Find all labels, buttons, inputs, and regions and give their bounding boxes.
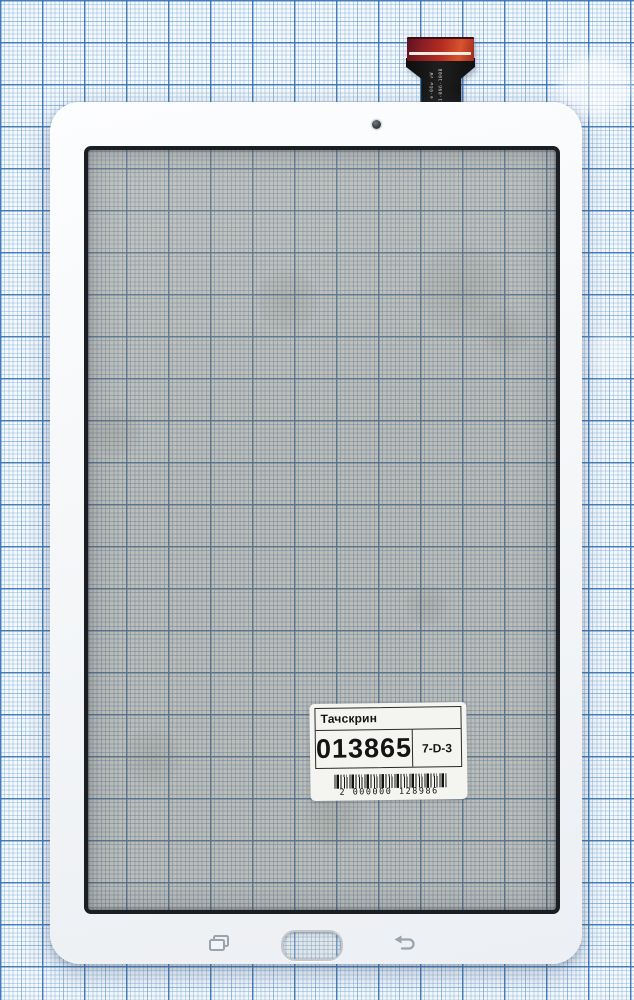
screen-glass: Тачскрин 013865 7-D-3 2 000000 128986 <box>84 146 560 914</box>
flex-ribbon: ⊕-06w vW 60Z1-096-100B <box>406 58 475 107</box>
front-camera-icon <box>372 120 381 129</box>
label-sticker: Тачскрин 013865 7-D-3 2 000000 128986 <box>309 702 467 801</box>
photo-graph-paper-background: ⊕-06w vW 60Z1-096-100B Тачскрин 0 <box>0 0 634 1000</box>
label-title: Тачскрин <box>315 707 460 731</box>
label-part-number: 013865 <box>316 730 413 768</box>
tablet-digitizer: Тачскрин 013865 7-D-3 2 000000 128986 <box>50 102 582 964</box>
recent-apps-icon <box>206 933 232 953</box>
back-arrow-icon <box>391 934 417 954</box>
glass-smudge <box>405 583 449 627</box>
flex-marking: ⊕-06w vW <box>430 72 435 98</box>
glass-smudge <box>90 406 142 458</box>
flex-connector <box>407 37 474 61</box>
glass-smudge <box>122 727 182 787</box>
flex-connector-stripe <box>409 52 471 55</box>
label-number-row: 013865 7-D-3 <box>316 729 462 768</box>
glass-smudge <box>255 268 319 332</box>
barcode-digits: 2 000000 128986 <box>311 786 468 798</box>
paper-smudge <box>586 330 634 376</box>
label-table: Тачскрин 013865 7-D-3 <box>314 706 462 769</box>
glass-smudge <box>479 306 531 358</box>
home-button <box>281 930 343 961</box>
label-location-code: 7-D-3 <box>412 729 461 767</box>
flex-cable: ⊕-06w vW 60Z1-096-100B <box>406 37 475 107</box>
